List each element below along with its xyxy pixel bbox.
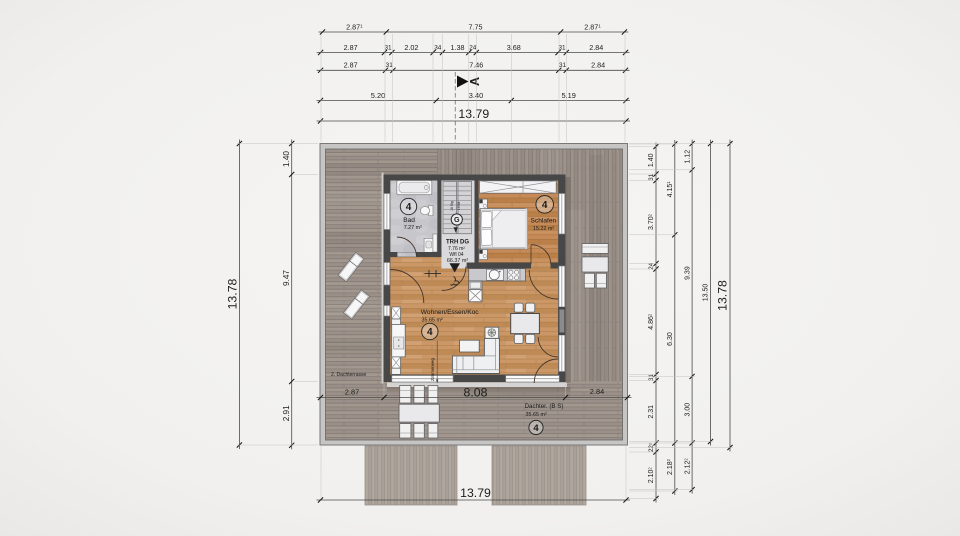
svg-text:13.78: 13.78 bbox=[226, 278, 240, 309]
svg-text:31: 31 bbox=[558, 44, 566, 51]
svg-text:66.37 m²: 66.37 m² bbox=[447, 258, 468, 264]
svg-text:4: 4 bbox=[533, 423, 539, 434]
svg-text:9.39: 9.39 bbox=[684, 266, 691, 280]
svg-text:18 Stg: 18 Stg bbox=[450, 201, 454, 211]
svg-text:7.75: 7.75 bbox=[469, 22, 483, 31]
svg-text:Dachter. (B S): Dachter. (B S) bbox=[525, 403, 564, 410]
svg-text:31: 31 bbox=[384, 44, 392, 51]
svg-text:2.31: 2.31 bbox=[648, 405, 655, 419]
svg-text:Zimmerweg: Zimmerweg bbox=[430, 358, 435, 381]
svg-text:2.87: 2.87 bbox=[345, 388, 359, 397]
svg-text:2. Dachterrasse: 2. Dachterrasse bbox=[331, 372, 367, 378]
svg-text:3.68: 3.68 bbox=[507, 43, 521, 52]
svg-text:3.00: 3.00 bbox=[684, 403, 691, 417]
svg-text:2.84: 2.84 bbox=[590, 387, 604, 396]
svg-text:3.40: 3.40 bbox=[469, 91, 483, 100]
svg-text:17/28: 17/28 bbox=[457, 202, 461, 211]
svg-text:5.19: 5.19 bbox=[562, 91, 576, 100]
svg-text:13.79: 13.79 bbox=[458, 107, 489, 121]
svg-text:2.84: 2.84 bbox=[591, 61, 605, 70]
svg-text:31: 31 bbox=[648, 173, 655, 180]
svg-text:13.79: 13.79 bbox=[460, 486, 491, 500]
svg-text:4: 4 bbox=[542, 200, 548, 211]
svg-text:9.47: 9.47 bbox=[282, 270, 291, 286]
svg-text:5.20: 5.20 bbox=[371, 91, 385, 100]
svg-text:1.38: 1.38 bbox=[451, 43, 465, 52]
svg-text:34: 34 bbox=[434, 44, 442, 51]
svg-text:4: 4 bbox=[427, 327, 433, 338]
svg-text:1.40: 1.40 bbox=[282, 151, 291, 167]
svg-text:15.22 m²: 15.22 m² bbox=[533, 226, 554, 232]
svg-text:1.12: 1.12 bbox=[684, 150, 691, 164]
svg-text:8.08: 8.08 bbox=[464, 385, 488, 399]
svg-text:13.78: 13.78 bbox=[716, 280, 730, 311]
svg-text:6.30: 6.30 bbox=[667, 332, 674, 346]
svg-text:7.27 m²: 7.27 m² bbox=[404, 225, 422, 231]
svg-text:1.40: 1.40 bbox=[648, 153, 655, 167]
svg-text:TRH DG: TRH DG bbox=[446, 239, 469, 245]
svg-text:4: 4 bbox=[406, 202, 412, 213]
svg-text:13.50: 13.50 bbox=[703, 284, 710, 302]
svg-text:2.87: 2.87 bbox=[344, 61, 358, 70]
svg-text:G: G bbox=[454, 215, 460, 224]
svg-text:35.65 m²: 35.65 m² bbox=[422, 317, 443, 323]
svg-text:31: 31 bbox=[559, 62, 567, 69]
svg-text:Bad: Bad bbox=[403, 217, 415, 224]
svg-text:2.91: 2.91 bbox=[282, 405, 291, 421]
svg-text:Wfl 04: Wfl 04 bbox=[449, 252, 463, 258]
svg-text:31: 31 bbox=[386, 62, 394, 69]
svg-text:2.84: 2.84 bbox=[589, 43, 603, 52]
svg-text:Wohnen/Essen/Koc: Wohnen/Essen/Koc bbox=[421, 309, 479, 316]
svg-text:2.02: 2.02 bbox=[404, 43, 418, 52]
svg-text:2.87: 2.87 bbox=[344, 43, 358, 52]
svg-text:35.65 m²: 35.65 m² bbox=[526, 412, 547, 418]
svg-text:24: 24 bbox=[469, 44, 477, 51]
svg-text:Schlafen: Schlafen bbox=[531, 218, 557, 225]
svg-text:A: A bbox=[468, 77, 482, 86]
